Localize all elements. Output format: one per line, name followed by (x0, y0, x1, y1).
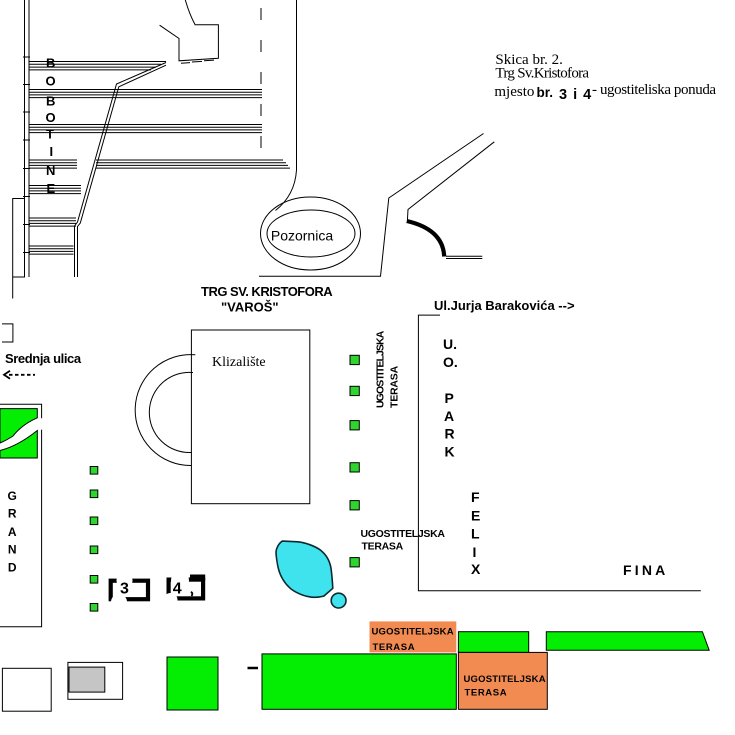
svg-text:TRG SV. KRISTOFORA: TRG SV. KRISTOFORA (201, 284, 333, 299)
svg-text:UGOSTITELJSKA: UGOSTITELJSKA (375, 330, 387, 408)
svg-text:UGOSTITELJSKA: UGOSTITELJSKA (464, 674, 546, 685)
svg-text:L: L (471, 526, 480, 542)
svg-text:3: 3 (120, 581, 129, 598)
svg-text:- ugostiteliska ponuda: - ugostiteliska ponuda (592, 82, 716, 98)
svg-text:Ul.Jurja Barakovića -->: Ul.Jurja Barakovića --> (434, 298, 575, 313)
svg-text:O: O (46, 110, 56, 125)
svg-text:B: B (46, 56, 55, 71)
svg-text:TERASA: TERASA (362, 541, 404, 553)
svg-text:Pozornica: Pozornica (271, 228, 333, 244)
svg-text:E: E (471, 508, 480, 524)
svg-text:TERASA: TERASA (465, 688, 508, 699)
svg-text:A: A (8, 525, 17, 539)
svg-text:I: I (50, 144, 54, 159)
svg-text:U.: U. (443, 336, 457, 352)
svg-text:Srednja ulica: Srednja ulica (5, 351, 82, 366)
svg-text:T: T (46, 127, 54, 142)
svg-text:A: A (444, 408, 454, 424)
svg-text:O.: O. (443, 354, 458, 370)
svg-text:UGOSTITELJSKA: UGOSTITELJSKA (361, 528, 446, 540)
svg-text:K: K (445, 444, 455, 460)
svg-text:R: R (445, 426, 455, 442)
svg-text:O: O (46, 74, 56, 89)
svg-text:G: G (8, 489, 17, 503)
svg-text:TERASA: TERASA (389, 365, 401, 408)
svg-text:mjesto: mjesto (494, 84, 534, 100)
svg-text:TERASA: TERASA (373, 642, 416, 653)
svg-text:X: X (471, 561, 481, 577)
svg-text:B: B (46, 94, 55, 109)
svg-text:br.: br. (537, 85, 554, 100)
svg-text:N: N (46, 163, 55, 178)
svg-text:I: I (473, 544, 477, 560)
svg-text:D: D (8, 561, 17, 575)
svg-text:UGOSTITELJSKA: UGOSTITELJSKA (372, 627, 454, 638)
svg-text:Klizalište: Klizalište (212, 355, 266, 370)
svg-text:P: P (445, 390, 454, 406)
svg-text:F: F (471, 489, 480, 505)
svg-text:N: N (8, 543, 17, 557)
svg-text:4: 4 (173, 581, 182, 598)
svg-text:"VAROŠ": "VAROŠ" (221, 300, 279, 315)
svg-text:E: E (47, 181, 56, 196)
svg-text:3 i 4: 3 i 4 (559, 87, 592, 103)
svg-text:R: R (8, 507, 17, 521)
svg-text:FINA: FINA (623, 562, 668, 578)
svg-text:Trg Sv.Kristofora: Trg Sv.Kristofora (495, 65, 589, 81)
